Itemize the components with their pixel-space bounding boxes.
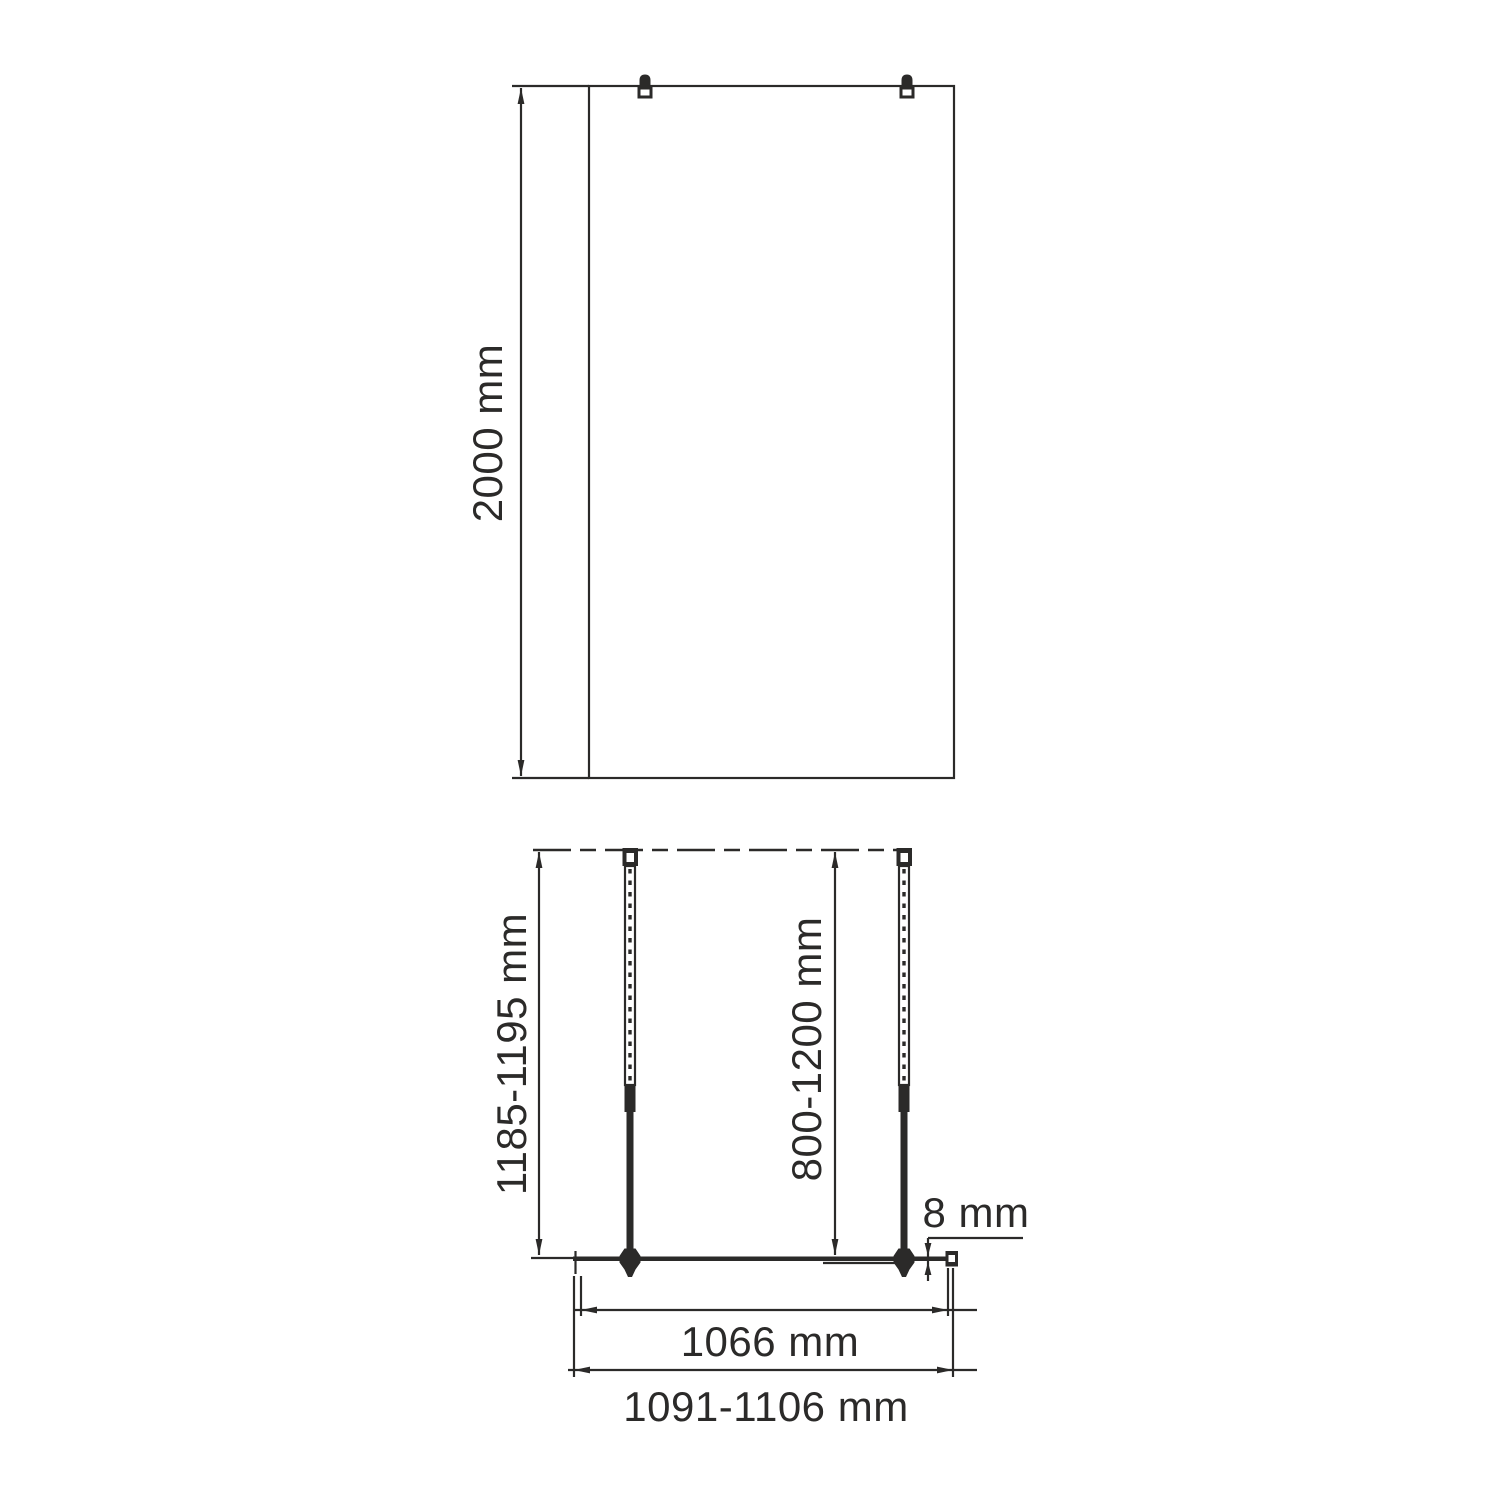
- wall-offset-dimension: 1185-1195 mm: [488, 852, 574, 1258]
- shower-screen-drawing: 2000 mm 1185-1195 mm: [0, 0, 1500, 1500]
- arrow-up-icon: [832, 852, 839, 868]
- wall-offset-label: 1185-1195 mm: [488, 913, 535, 1195]
- bar-length-label: 800-1200 mm: [783, 917, 830, 1182]
- inner-rod: [901, 1112, 908, 1252]
- tube-sleeve: [625, 1084, 636, 1112]
- glass-clamp-foot-icon: [894, 1249, 915, 1278]
- wall-bracket-slot: [901, 853, 909, 862]
- arrow-right-icon: [937, 1367, 953, 1374]
- ceiling-clamp-right-icon: [900, 75, 915, 99]
- arrow-up-icon: [925, 1262, 932, 1275]
- technical-drawing-page: 2000 mm 1185-1195 mm: [0, 0, 1500, 1500]
- wall-bracket-slot: [627, 853, 635, 862]
- plan-view: 1185-1195 mm 800-1200 mm: [488, 848, 1030, 1430]
- arrow-left-icon: [581, 1307, 597, 1314]
- glass-width-dimension: 1066 mm: [575, 1307, 977, 1365]
- height-dimension-label: 2000 mm: [464, 344, 511, 523]
- tube-sleeve: [899, 1084, 910, 1112]
- arrow-right-icon: [932, 1307, 948, 1314]
- arrow-down-icon: [518, 760, 525, 776]
- arrow-left-icon: [574, 1367, 590, 1374]
- arrow-down-icon: [925, 1243, 932, 1256]
- arrow-down-icon: [832, 1239, 839, 1255]
- end-cap-slot: [949, 1255, 956, 1262]
- glass-edge-line: [573, 1257, 956, 1262]
- arrow-up-icon: [536, 852, 543, 868]
- support-bar-right: [894, 848, 915, 1277]
- bar-length-dimension: 800-1200 mm: [783, 852, 897, 1263]
- height-dimension: 2000 mm: [464, 88, 524, 776]
- overall-width-dimension: 1091-1106 mm: [568, 1367, 977, 1430]
- glass-clamp-foot-icon: [620, 1249, 641, 1278]
- clamp-slot: [903, 90, 912, 96]
- overall-width-label: 1091-1106 mm: [623, 1383, 908, 1430]
- glass-thickness-dimension: 8 mm: [923, 1189, 1030, 1281]
- clamp-slot: [641, 90, 650, 96]
- support-bar-left: [620, 848, 641, 1277]
- clamp-knob: [640, 75, 651, 87]
- glass-panel-outline: [589, 86, 954, 778]
- glass-width-label: 1066 mm: [681, 1318, 860, 1365]
- arrow-up-icon: [518, 88, 525, 104]
- ceiling-clamp-left-icon: [638, 75, 653, 99]
- inner-rod: [627, 1112, 634, 1252]
- arrow-down-icon: [536, 1239, 543, 1255]
- clamp-knob: [902, 75, 913, 87]
- glass-thickness-label: 8 mm: [923, 1189, 1030, 1236]
- front-view: 2000 mm: [464, 75, 954, 779]
